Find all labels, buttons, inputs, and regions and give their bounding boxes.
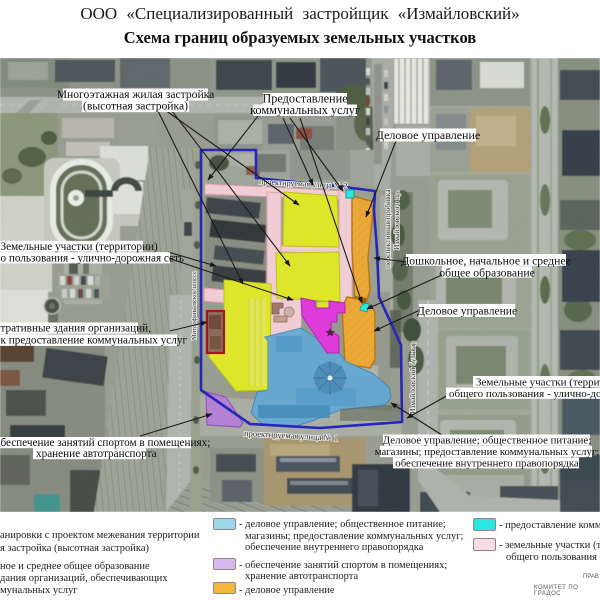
svg-text:о пользования - улично-дорожна: о пользования - улично-дорожная сеть <box>1 252 184 264</box>
svg-text:общего пользования - улично-до: общего пользования - улично-доро <box>449 388 600 400</box>
svg-text:Деловое управление: Деловое управление <box>376 128 480 142</box>
svg-text:обеспечение внутреннего правоп: обеспечение внутреннего правопорядка <box>395 457 579 469</box>
svg-text:общее образование: общее образование <box>439 266 535 279</box>
svg-text:тративные здания организаций,: тративные здания организаций, <box>1 323 152 335</box>
svg-text:Земельные участки (террито: Земельные участки (террито <box>476 377 600 389</box>
svg-text:магазины; предоставление комму: магазины; предоставление коммунальных ус… <box>375 446 600 458</box>
svg-text:коммунальных услуг: коммунальных услуг <box>250 103 360 117</box>
svg-text:Земельные участки (территории): Земельные участки (территории) <box>1 241 158 253</box>
svg-text:(высотная застройка): (высотная застройка) <box>83 100 188 113</box>
svg-text:хранение автотранспорта: хранение автотранспорта <box>36 448 157 460</box>
svg-text:Деловое управление: Деловое управление <box>417 306 517 318</box>
svg-text:Деловое управление; общественн: Деловое управление; общественное питание… <box>383 435 591 447</box>
svg-text:беспечение занятий спортом в п: беспечение занятий спортом в помещениях; <box>1 437 211 449</box>
svg-text:к предоставление коммунальных: к предоставление коммунальных услуг <box>1 335 188 347</box>
